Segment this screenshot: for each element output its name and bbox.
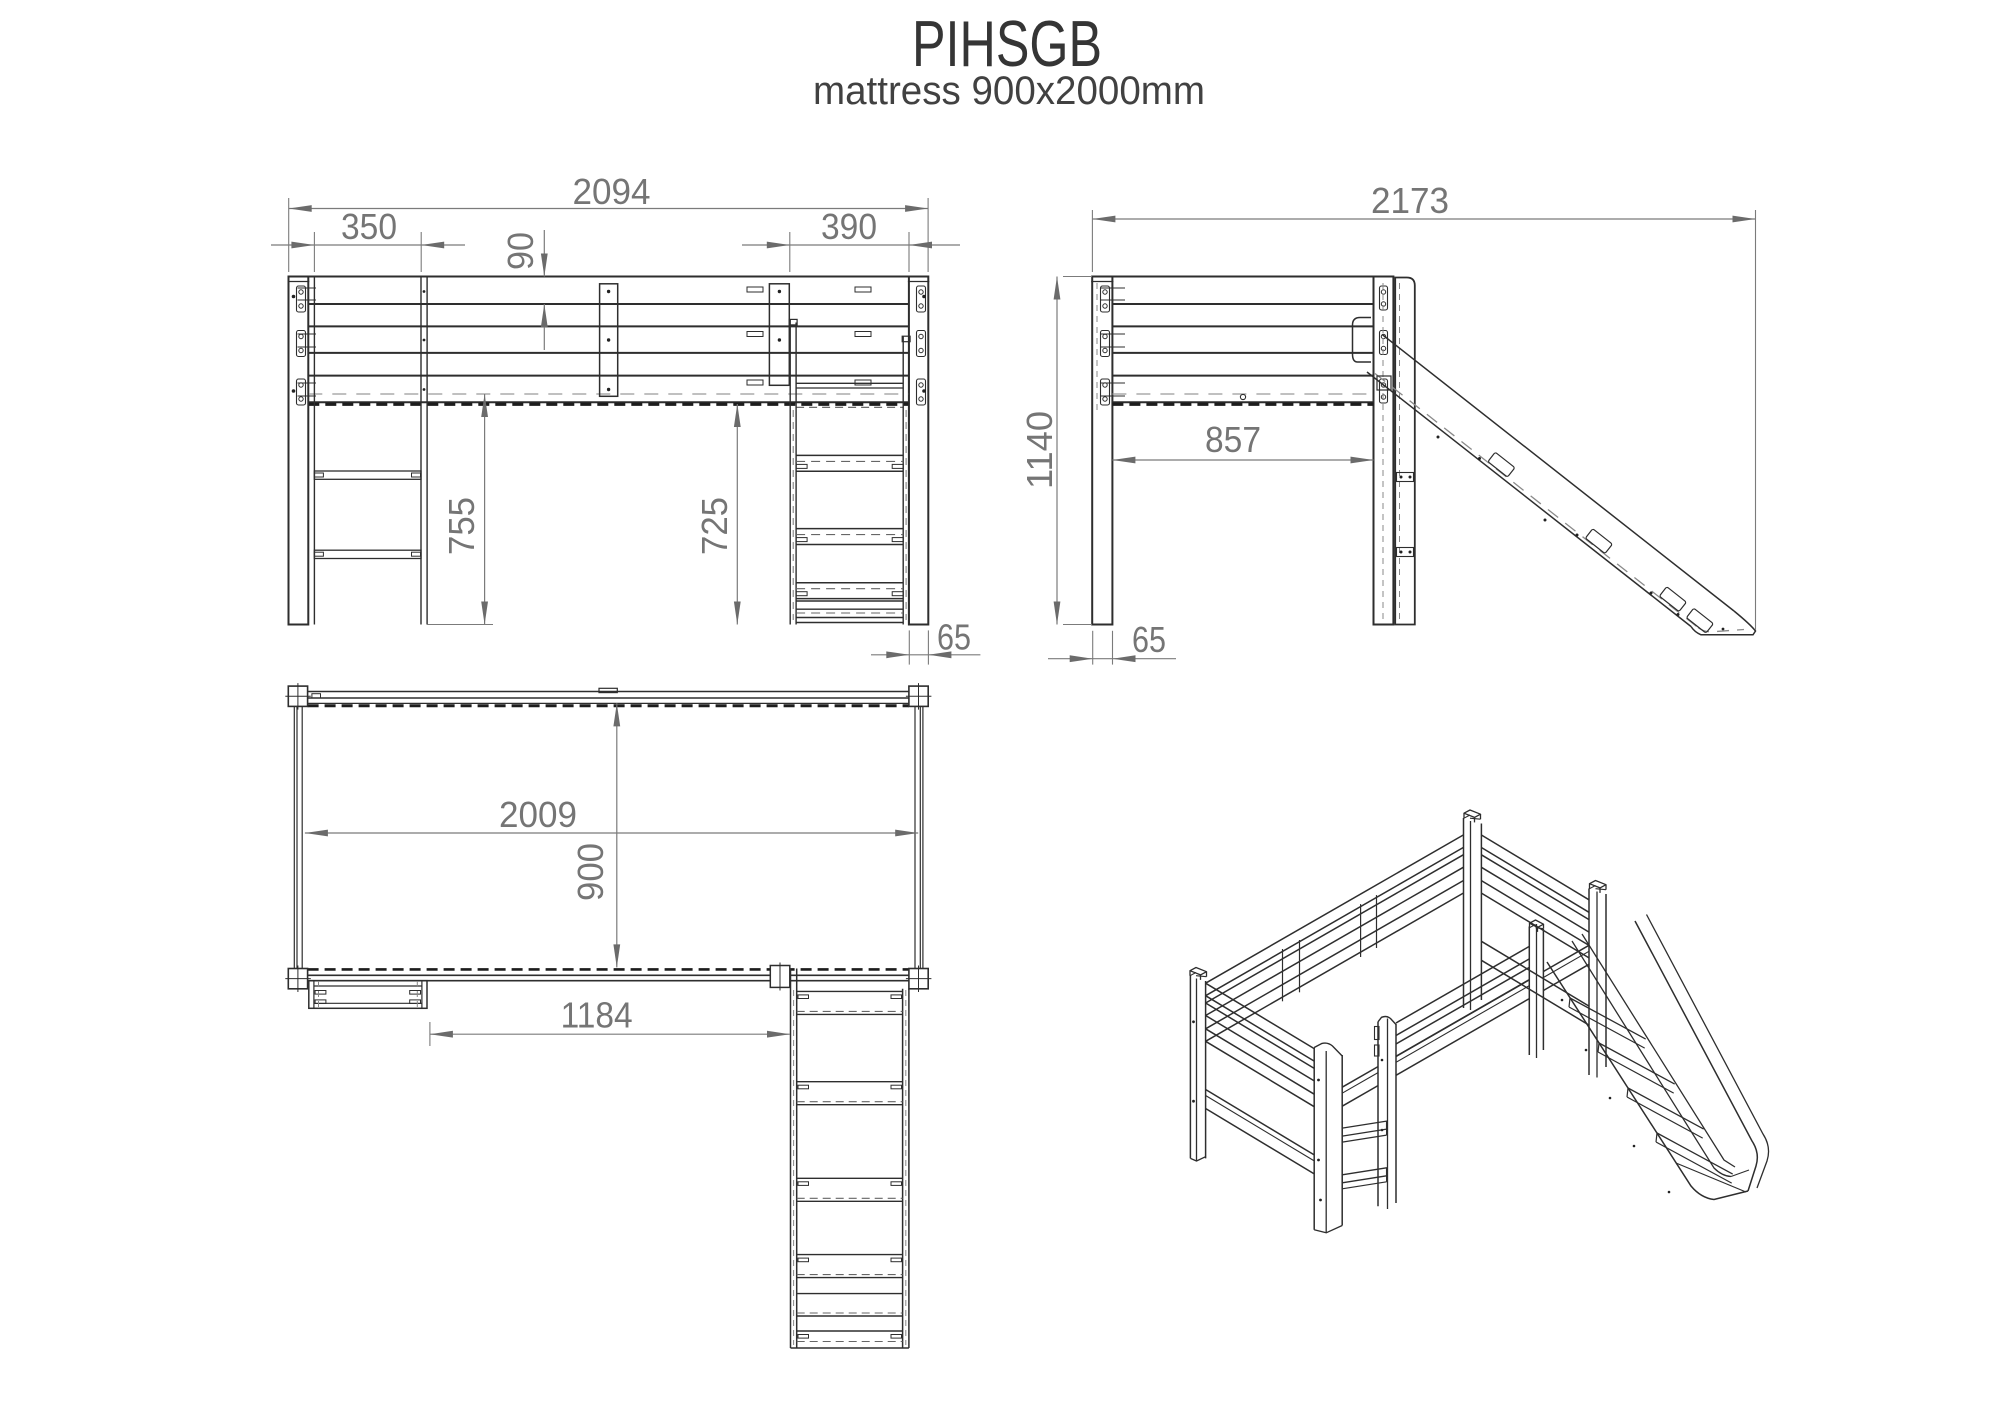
svg-text:350: 350 xyxy=(341,206,397,247)
svg-text:mattress 900x2000mm: mattress 900x2000mm xyxy=(813,69,1205,113)
svg-text:2094: 2094 xyxy=(573,171,651,212)
svg-text:65: 65 xyxy=(937,617,971,658)
svg-text:390: 390 xyxy=(821,206,877,247)
svg-text:900: 900 xyxy=(570,843,611,901)
svg-text:90: 90 xyxy=(500,232,541,270)
svg-text:1184: 1184 xyxy=(561,995,633,1036)
svg-text:2009: 2009 xyxy=(499,794,577,835)
svg-text:1140: 1140 xyxy=(1019,411,1060,489)
svg-text:2173: 2173 xyxy=(1371,180,1449,221)
svg-text:857: 857 xyxy=(1205,419,1261,460)
svg-text:65: 65 xyxy=(1132,619,1166,660)
svg-text:725: 725 xyxy=(694,497,735,555)
svg-text:755: 755 xyxy=(441,497,482,555)
